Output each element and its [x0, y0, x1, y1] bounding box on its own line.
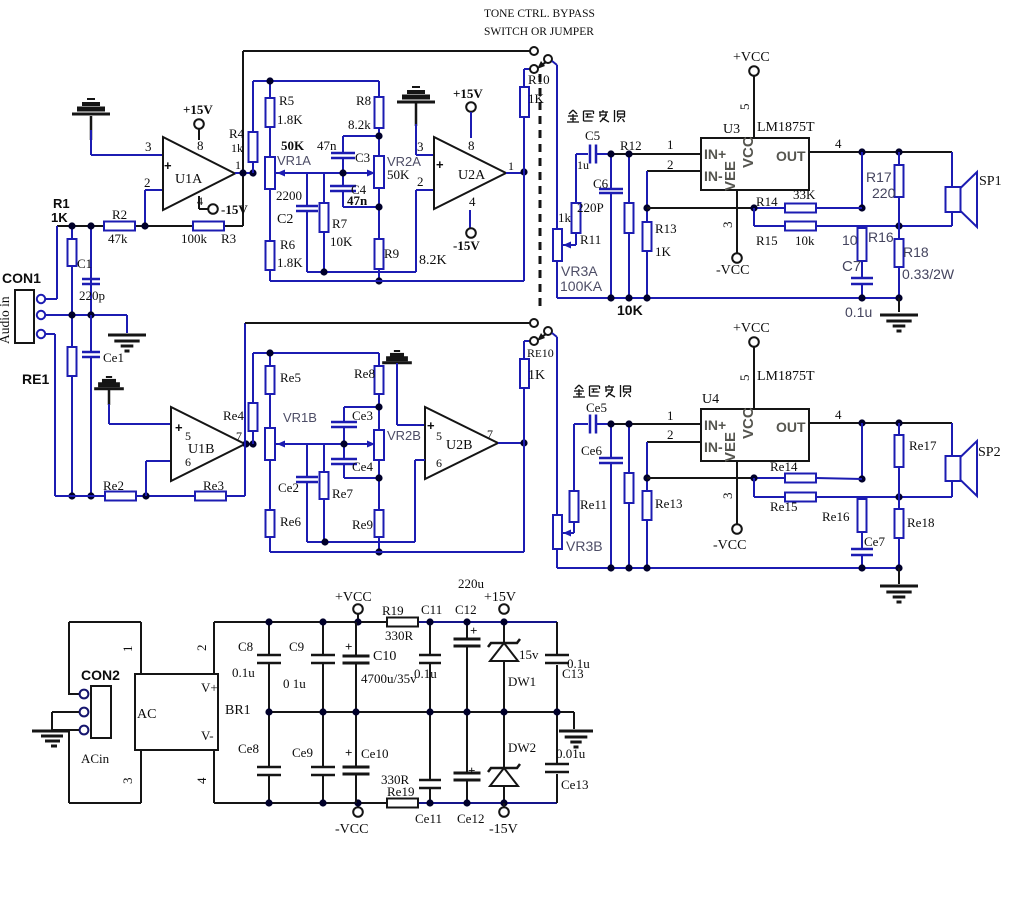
svg-text:R10: R10 [528, 72, 550, 87]
svg-text:VR1B: VR1B [283, 410, 317, 425]
svg-text:47k: 47k [108, 231, 128, 246]
svg-text:TONE CTRL. BYPASS: TONE CTRL. BYPASS [484, 8, 595, 20]
svg-text:R16: R16 [868, 229, 894, 245]
svg-text:R3: R3 [221, 231, 236, 246]
svg-text:BR1: BR1 [225, 703, 251, 718]
svg-text:33K: 33K [793, 187, 816, 202]
svg-text:Ce8: Ce8 [238, 741, 259, 756]
svg-text:+: + [468, 763, 475, 778]
svg-text:C8: C8 [238, 639, 253, 654]
svg-text:R5: R5 [279, 93, 294, 108]
svg-text:Ce12: Ce12 [457, 811, 484, 826]
svg-text:Ce1: Ce1 [103, 350, 124, 365]
svg-text:R9: R9 [384, 246, 399, 261]
svg-text:C2: C2 [277, 212, 293, 227]
svg-text:CON1: CON1 [2, 270, 41, 286]
svg-text:-VCC: -VCC [713, 538, 746, 553]
svg-text:100k: 100k [181, 231, 208, 246]
svg-text:2: 2 [417, 174, 424, 189]
svg-text:5: 5 [185, 429, 191, 443]
svg-text:+: + [436, 157, 444, 172]
svg-text:1u: 1u [577, 158, 589, 172]
svg-text:Re13: Re13 [655, 496, 682, 511]
svg-text:Ce2: Ce2 [278, 480, 299, 495]
svg-text:-15V: -15V [453, 238, 480, 253]
svg-text:Re15: Re15 [770, 499, 797, 514]
svg-text:SP1: SP1 [979, 174, 1002, 189]
svg-text:6: 6 [436, 456, 442, 470]
svg-text:Re19: Re19 [387, 784, 414, 799]
svg-text:Re7: Re7 [332, 486, 353, 501]
svg-text:IN+: IN+ [704, 146, 726, 162]
svg-text:-15V: -15V [221, 202, 248, 217]
svg-text:1: 1 [667, 137, 674, 152]
svg-text:V-: V- [201, 728, 214, 743]
svg-text:Re14: Re14 [770, 459, 798, 474]
svg-text:LM1875T: LM1875T [757, 120, 815, 135]
svg-text:+: + [427, 418, 435, 433]
svg-text:Ce9: Ce9 [292, 745, 313, 760]
svg-text:VEE: VEE [722, 161, 739, 191]
svg-text:Re17: Re17 [909, 438, 937, 453]
svg-text:8.2k: 8.2k [348, 117, 371, 132]
svg-text:1k: 1k [231, 141, 243, 155]
svg-text:3: 3 [720, 222, 735, 229]
svg-text:220p: 220p [79, 288, 105, 303]
svg-text:Ce5: Ce5 [586, 400, 607, 415]
svg-text:+VCC: +VCC [733, 50, 770, 65]
svg-text:C7: C7 [842, 258, 861, 275]
svg-text:C3: C3 [355, 150, 370, 165]
svg-text:R6: R6 [280, 237, 296, 252]
svg-text:0.01u: 0.01u [556, 746, 586, 761]
svg-text:U4: U4 [702, 392, 719, 407]
svg-text:47n: 47n [317, 138, 337, 153]
svg-text:10K: 10K [617, 302, 643, 318]
svg-text:+15V: +15V [484, 590, 516, 605]
svg-text:R7: R7 [332, 216, 348, 231]
svg-text:2: 2 [194, 645, 209, 652]
svg-text:R2: R2 [112, 207, 127, 222]
svg-text:U2B: U2B [446, 438, 472, 453]
svg-text:Re2: Re2 [103, 478, 124, 493]
svg-text:C11: C11 [421, 602, 442, 617]
svg-text:15v: 15v [519, 647, 539, 662]
svg-text:6: 6 [185, 455, 191, 469]
svg-text:50K: 50K [387, 167, 410, 182]
svg-text:CON2: CON2 [81, 667, 120, 683]
svg-text:8.2K: 8.2K [419, 253, 447, 268]
svg-text:220u: 220u [458, 576, 485, 591]
svg-text:7: 7 [487, 427, 493, 441]
svg-text:R13: R13 [655, 221, 677, 236]
svg-text:RE1: RE1 [22, 371, 49, 387]
svg-text:Ce11: Ce11 [415, 811, 442, 826]
svg-text:Re18: Re18 [907, 515, 934, 530]
svg-text:5: 5 [737, 104, 752, 111]
svg-text:+: + [470, 623, 477, 638]
svg-text:IN+: IN+ [704, 417, 726, 433]
svg-text:U2A: U2A [458, 168, 486, 183]
svg-text:1K: 1K [528, 368, 545, 383]
svg-text:R4: R4 [229, 126, 245, 141]
svg-text:R8: R8 [356, 93, 371, 108]
svg-text:+VCC: +VCC [335, 590, 372, 605]
svg-text:U1B: U1B [188, 442, 214, 457]
svg-text:Ce10: Ce10 [361, 746, 388, 761]
svg-text:Ce4: Ce4 [352, 459, 373, 474]
svg-text:10K: 10K [330, 234, 353, 249]
svg-text:5: 5 [737, 375, 752, 382]
svg-text:1: 1 [667, 408, 674, 423]
svg-text:Ce3: Ce3 [352, 408, 373, 423]
svg-text:U3: U3 [723, 122, 740, 137]
svg-text:4: 4 [835, 407, 842, 422]
svg-text:VR1A: VR1A [277, 153, 311, 168]
svg-text:R17: R17 [866, 169, 892, 185]
svg-text:R11: R11 [580, 232, 601, 247]
svg-text:+15V: +15V [453, 86, 483, 101]
svg-text:R18: R18 [903, 244, 929, 260]
svg-text:OUT: OUT [776, 148, 806, 164]
svg-text:+: + [175, 420, 183, 435]
svg-text:C13: C13 [562, 666, 584, 681]
svg-text:DW2: DW2 [508, 740, 536, 755]
svg-text:DW1: DW1 [508, 674, 536, 689]
svg-text:C1: C1 [77, 256, 92, 271]
svg-text:0.33/2W: 0.33/2W [902, 266, 955, 282]
svg-text:1: 1 [235, 158, 241, 172]
svg-text:+VCC: +VCC [733, 321, 770, 336]
svg-text:R12: R12 [620, 138, 642, 153]
svg-text:U1A: U1A [175, 172, 203, 187]
svg-text:220P: 220P [577, 200, 604, 215]
svg-text:C5: C5 [585, 128, 600, 143]
svg-text:Re3: Re3 [203, 478, 224, 493]
svg-text:+: + [345, 745, 352, 760]
svg-text:+: + [345, 639, 352, 654]
svg-text:1.8K: 1.8K [277, 112, 303, 127]
svg-text:RE10: RE10 [527, 346, 554, 360]
svg-text:4: 4 [194, 777, 209, 784]
svg-text:C6: C6 [593, 176, 609, 191]
svg-text:-VCC: -VCC [335, 822, 368, 837]
svg-text:Audio in: Audio in [0, 296, 12, 344]
svg-text:C12: C12 [455, 602, 477, 617]
svg-text:4: 4 [469, 194, 476, 209]
svg-text:1K: 1K [51, 210, 68, 225]
svg-text:Ce6: Ce6 [581, 443, 602, 458]
svg-text:V+: V+ [201, 680, 218, 695]
svg-text:C10: C10 [373, 649, 396, 664]
svg-text:1.8K: 1.8K [277, 255, 303, 270]
svg-text:2200: 2200 [276, 188, 302, 203]
svg-text:100KA: 100KA [560, 278, 603, 294]
svg-text:10k: 10k [795, 233, 815, 248]
svg-text:7: 7 [236, 429, 242, 443]
svg-text:ACin: ACin [81, 751, 110, 766]
svg-text:+: + [164, 158, 172, 173]
svg-text:SP2: SP2 [978, 445, 1001, 460]
svg-text:VR3B: VR3B [566, 538, 603, 554]
svg-text:4700u/35v: 4700u/35v [361, 671, 417, 686]
svg-text:Re9: Re9 [352, 517, 373, 532]
svg-text:R15: R15 [756, 233, 778, 248]
svg-text:1K: 1K [655, 244, 672, 259]
svg-text:Ce7: Ce7 [864, 534, 885, 549]
svg-text:Re4: Re4 [223, 408, 244, 423]
svg-text:VR2B: VR2B [387, 428, 421, 443]
svg-text:330R: 330R [385, 628, 414, 643]
svg-text:VR3A: VR3A [561, 263, 598, 279]
svg-text:220: 220 [872, 185, 896, 201]
svg-text:4: 4 [835, 136, 842, 151]
svg-text:Re8: Re8 [354, 366, 375, 381]
svg-text:+15V: +15V [183, 102, 213, 117]
svg-text:3: 3 [120, 778, 135, 785]
svg-text:C9: C9 [289, 639, 304, 654]
svg-text:3: 3 [145, 139, 152, 154]
svg-text:10: 10 [842, 232, 858, 248]
svg-text:1K: 1K [528, 91, 545, 106]
svg-text:47n: 47n [347, 193, 368, 208]
svg-text:-15V: -15V [489, 822, 518, 837]
svg-text:5: 5 [436, 429, 442, 443]
svg-text:Re11: Re11 [580, 497, 607, 512]
svg-text:IN-: IN- [704, 439, 723, 455]
svg-text:0.1u: 0.1u [845, 304, 872, 320]
svg-text:Re6: Re6 [280, 514, 301, 529]
svg-text:3: 3 [720, 493, 735, 500]
svg-text:IN-: IN- [704, 168, 723, 184]
svg-text:0.1u: 0.1u [232, 665, 255, 680]
svg-text:0 1u: 0 1u [283, 676, 306, 691]
svg-text:SWITCH OR JUMPER: SWITCH OR JUMPER [484, 26, 594, 38]
svg-text:1: 1 [508, 159, 514, 173]
svg-text:AC: AC [137, 707, 156, 722]
svg-text:Re16: Re16 [822, 509, 850, 524]
svg-text:2: 2 [144, 175, 151, 190]
svg-text:VCC: VCC [740, 136, 757, 168]
svg-text:8: 8 [468, 138, 475, 153]
svg-text:VEE: VEE [722, 432, 739, 462]
svg-text:8: 8 [197, 138, 204, 153]
svg-text:3: 3 [417, 139, 424, 154]
svg-text:R14: R14 [756, 194, 778, 209]
svg-text:LM1875T: LM1875T [757, 369, 815, 384]
svg-text:VCC: VCC [740, 407, 757, 439]
svg-text:Ce13: Ce13 [561, 777, 588, 792]
svg-text:OUT: OUT [776, 419, 806, 435]
svg-text:2: 2 [667, 157, 674, 172]
svg-text:-VCC: -VCC [716, 263, 749, 278]
svg-text:1: 1 [120, 646, 135, 653]
svg-text:1k: 1k [558, 210, 572, 225]
svg-text:R19: R19 [382, 603, 404, 618]
svg-text:0.1u: 0.1u [414, 666, 437, 681]
svg-text:R1: R1 [53, 196, 70, 211]
svg-text:2: 2 [667, 427, 674, 442]
svg-text:Re5: Re5 [280, 370, 301, 385]
svg-text:50K: 50K [281, 138, 305, 153]
